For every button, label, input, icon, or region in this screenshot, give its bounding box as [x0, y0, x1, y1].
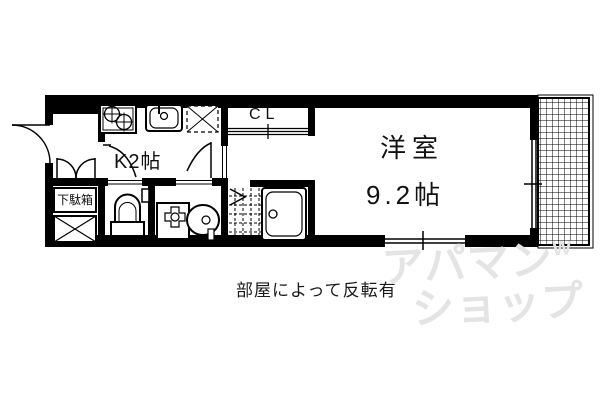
wall-bath-top [250, 180, 315, 187]
closet-label: CL [249, 106, 279, 124]
wall-left-upper [45, 95, 53, 125]
room-name-label: 洋室 [380, 128, 444, 165]
pipe-space-icon [54, 216, 96, 242]
shoe-cabinet-label: 下駄箱 [54, 191, 96, 208]
wall-left-lower [45, 163, 53, 247]
wall-kitchen-bottom-mid [142, 178, 176, 186]
washing-machine-icon [157, 203, 189, 239]
watermark-line2: ショップ [411, 280, 585, 332]
appliance-space-icon [187, 106, 218, 132]
washroom-fixtures [157, 203, 219, 240]
kitchen-label: K2帖 [114, 145, 161, 174]
wall-closet-right [308, 95, 315, 136]
bath-floor-tiles [229, 188, 262, 242]
hall-door-right-arc [76, 159, 95, 178]
front-door-arc [12, 125, 50, 163]
wall-bath-right [308, 180, 315, 247]
room-size-label: 9.2帖 [366, 175, 444, 212]
balcony [538, 95, 593, 248]
apamanshop-watermark: アパマンW ショップ [381, 237, 585, 333]
stove-icon [100, 105, 136, 134]
bathtub-icon [262, 188, 306, 240]
toilet-icon [111, 189, 149, 236]
floorplan-image: CL K2帖 下駄箱 洋室 9.2帖 部屋によって反転有 アパマンW ショップ [0, 0, 600, 400]
wall-hall-bottom [45, 178, 108, 186]
wall-washroom-bath [221, 178, 228, 247]
wall-entry-top [53, 108, 98, 114]
balcony-hatch [538, 98, 589, 245]
caption-text: 部屋によって反転有 [236, 276, 397, 301]
wall-room-right-upper [530, 95, 538, 140]
washbasin-icon [187, 205, 219, 240]
watermark-w-mark: W [552, 237, 572, 260]
washroom-door-arc [187, 143, 211, 171]
hall-door-left-arc [57, 159, 76, 178]
wall-toilet-left [98, 186, 105, 247]
bath-folding-door [230, 189, 245, 205]
wall-kitchen-room-upper [221, 95, 228, 146]
bathroom [229, 188, 306, 242]
closet-sliding-door [228, 124, 308, 139]
